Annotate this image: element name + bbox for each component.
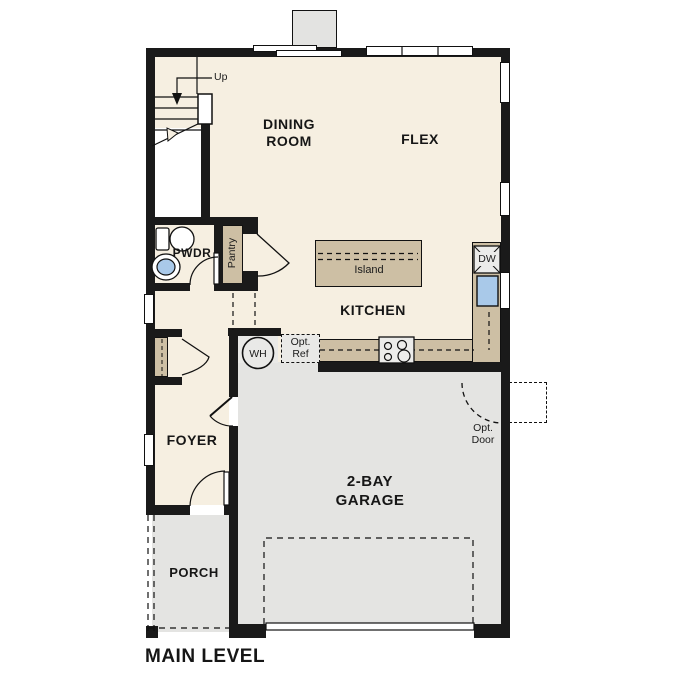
floor-plan: Up DINING ROOM FLEX PWDR Pantry Island K… [0,0,687,687]
island-label: Island [329,264,409,276]
pantry-label: Pantry [212,233,252,273]
stove-fixture [379,337,414,363]
garage-door [266,623,474,630]
pwdr-label: PWDR [166,245,218,262]
opt-door-swing [462,383,502,423]
plan-title: MAIN LEVEL [145,648,365,665]
island-dashes [318,254,418,260]
kitchen-sink-fixture [477,276,498,306]
pantry-door [257,234,289,276]
dining-room-label: DINING ROOM [234,116,344,150]
kitchen-opening-dashes [233,293,255,330]
porch-label: PORCH [158,564,230,581]
garage-label: 2-BAY GARAGE [310,472,430,510]
garage-entry-door [210,397,233,426]
front-door [190,471,229,506]
dw-label: DW [474,253,500,265]
kitchen-label: KITCHEN [318,302,428,319]
window-mullions [402,47,438,55]
stair-up-arrow [172,93,182,105]
opt-door-label: Opt. Door [458,422,508,446]
stair-newel [198,94,212,124]
foyer-label: FOYER [160,432,224,449]
plan-linework [0,0,687,687]
closet-door [182,339,209,375]
wh-label: WH [243,348,273,360]
flex-label: FLEX [380,131,460,148]
up-label: Up [214,71,244,83]
garage-door-clearance-dashes [264,538,473,624]
opt-ref-label: Opt. Ref [281,336,320,360]
